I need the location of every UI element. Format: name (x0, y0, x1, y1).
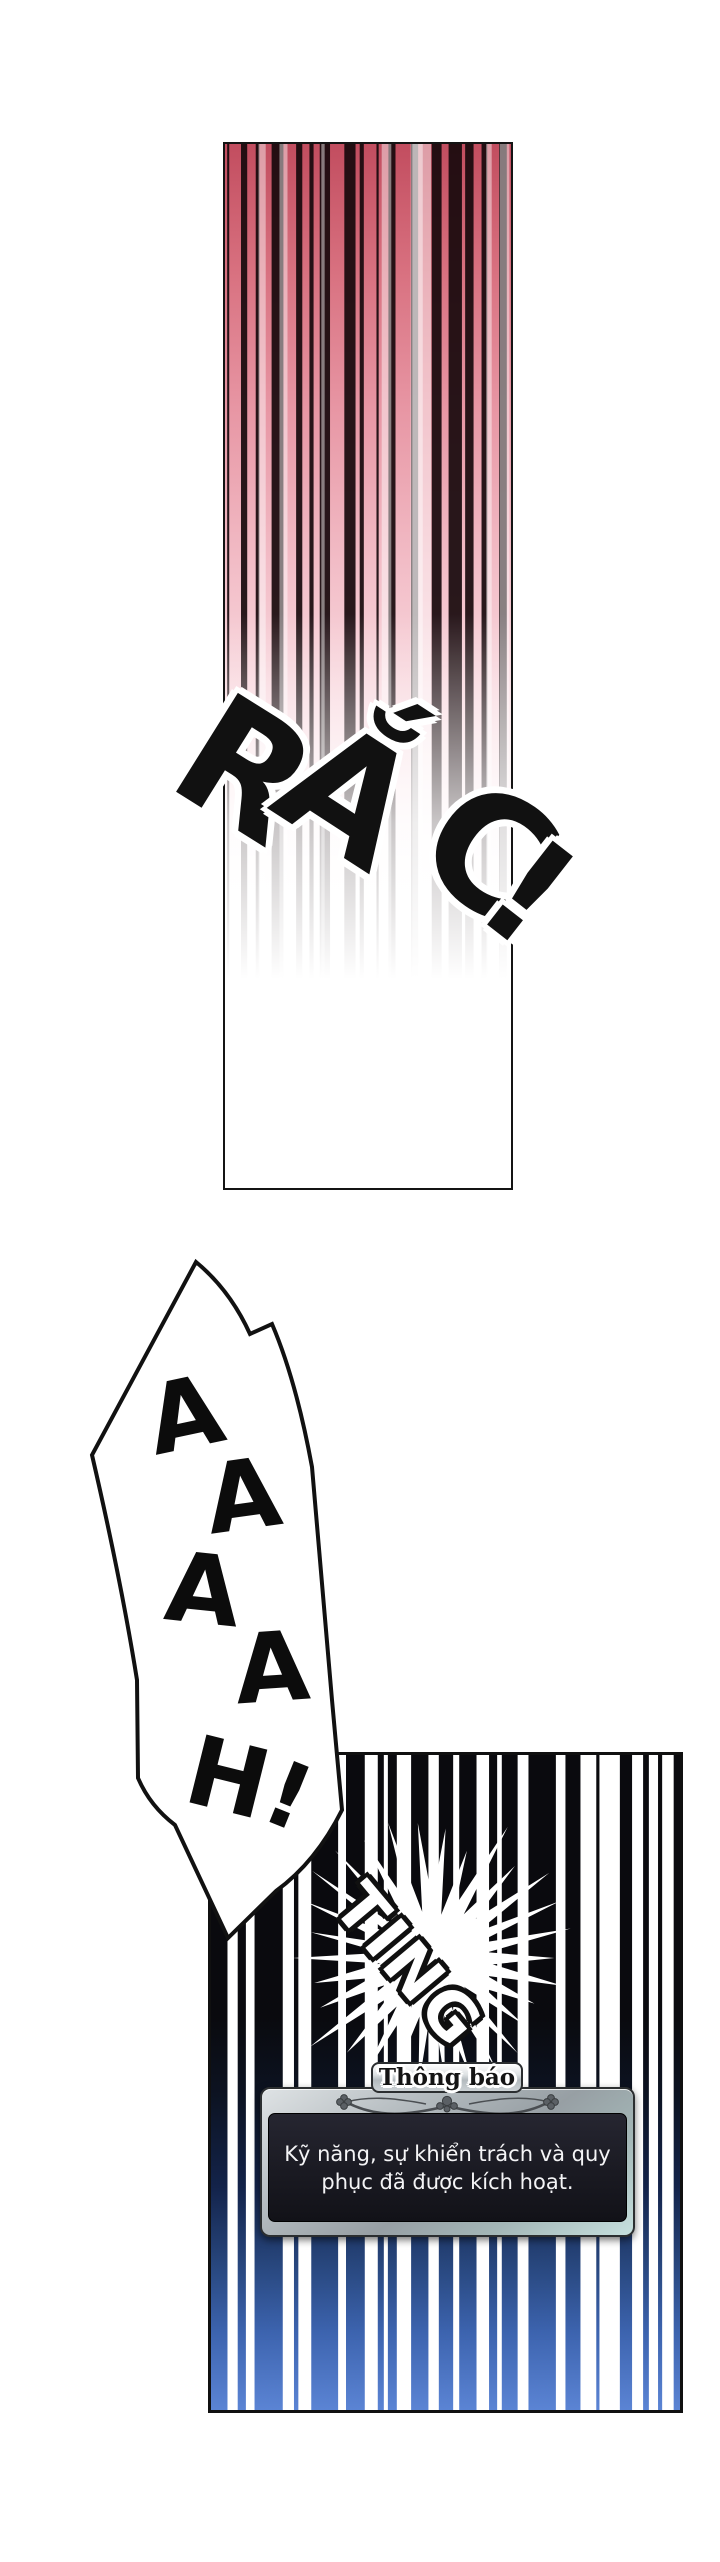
comic-page: RẮC! TING AAAAH! Thông báo Kỹ năng, sự (0, 0, 720, 2562)
notification-body: Kỹ năng, sự khiển trách và quy phục đã đ… (268, 2113, 627, 2222)
notification-message-line-2: phục đã được kích hoạt. (321, 2168, 573, 2196)
scream-bubble (80, 1250, 350, 1950)
notification-title: Thông báo (379, 2064, 515, 2091)
speed-line-fade (225, 144, 511, 1188)
notification-message-line-1: Kỹ năng, sự khiển trách và quy (284, 2140, 610, 2168)
speed-line-panel-top (223, 142, 513, 1190)
notification-title-tab: Thông báo (371, 2062, 523, 2093)
